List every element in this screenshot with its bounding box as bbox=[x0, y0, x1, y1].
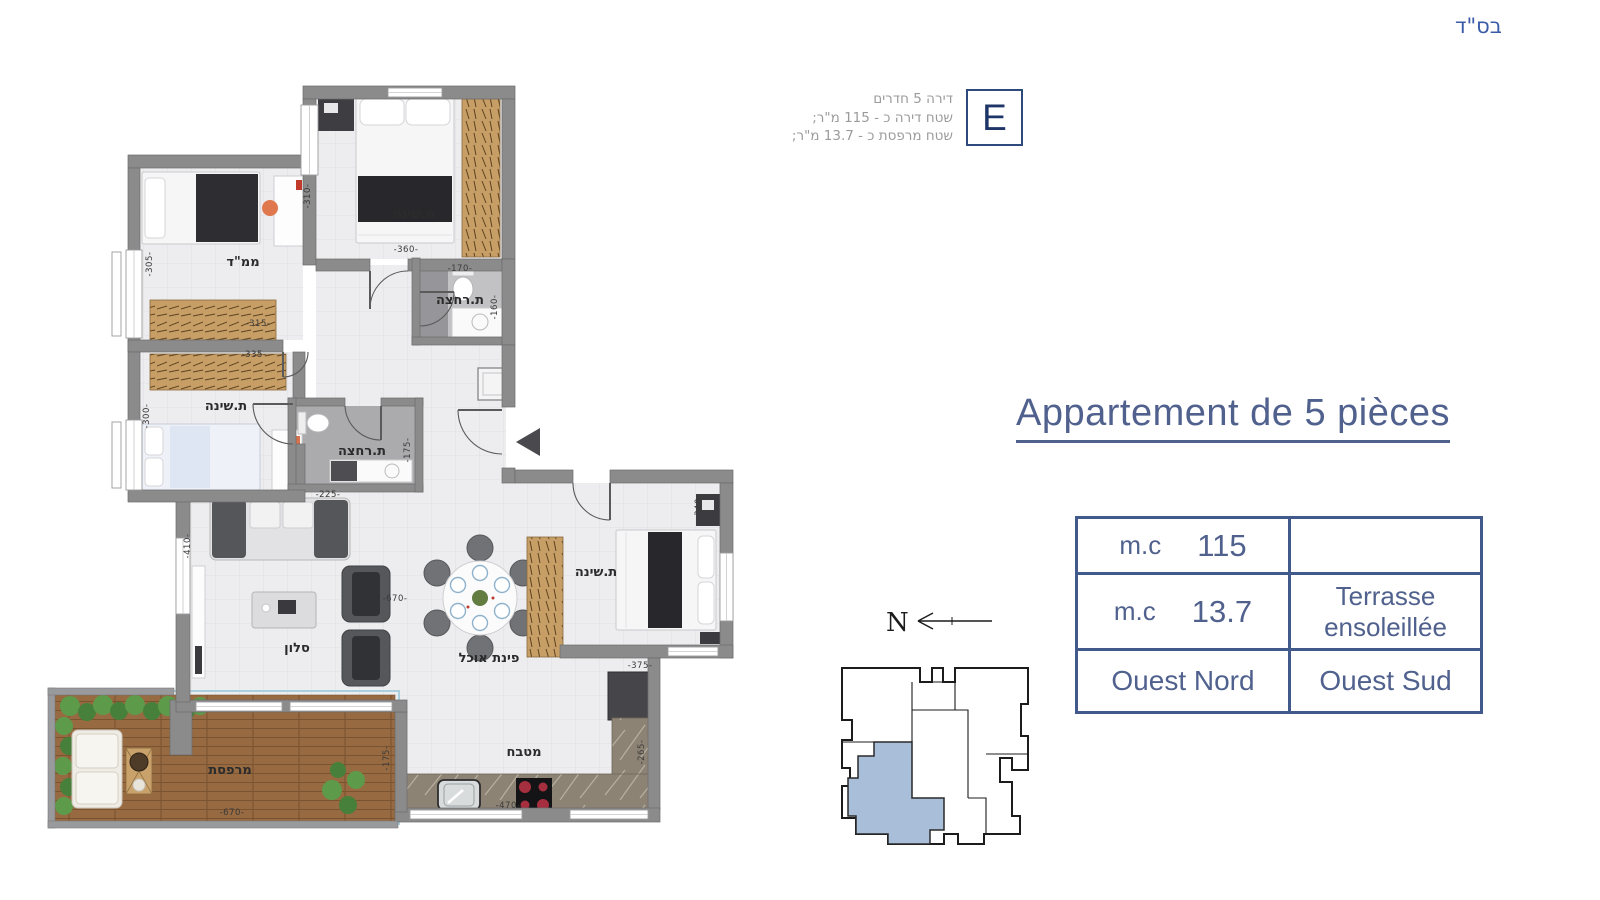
unit-letter-badge: E bbox=[966, 89, 1023, 146]
unit-letter: E bbox=[982, 97, 1007, 139]
sofa bbox=[210, 498, 350, 560]
north-arrow-icon bbox=[918, 613, 992, 629]
brochure-page: { "page": { "bsd": "בס\"ד" }, "unit_info… bbox=[0, 0, 1600, 900]
kitchen-sink bbox=[438, 780, 480, 810]
dimension-label: -410- bbox=[183, 534, 193, 559]
dimension-label: -670- bbox=[383, 594, 408, 604]
room-label: פינת אוכל bbox=[459, 651, 520, 666]
bsd-blessing: בס"ד bbox=[1455, 14, 1502, 38]
spec-cell-terrace-desc: Terrasse ensoleillée bbox=[1291, 575, 1480, 651]
spec-cell-area: m.c 115 bbox=[1078, 519, 1291, 575]
dimension-label: -670- bbox=[220, 808, 245, 818]
coffee-table bbox=[252, 592, 316, 628]
wardrobe bbox=[527, 537, 563, 657]
spec-cell-orientation-right: Ouest Sud bbox=[1291, 651, 1480, 711]
room-label: מרפסת bbox=[208, 763, 252, 778]
dimension-label: -340- bbox=[694, 495, 704, 520]
building-key-plan bbox=[826, 646, 1034, 848]
terrace-desc-line: Terrasse bbox=[1324, 581, 1447, 612]
area-value: 115 bbox=[1197, 528, 1246, 564]
media-unit bbox=[318, 97, 354, 131]
room-label: ת.שינה bbox=[205, 399, 247, 414]
terrace-value: 13.7 bbox=[1192, 594, 1252, 630]
dimension-label: -315- bbox=[246, 319, 271, 329]
entrance-arrow-icon bbox=[516, 428, 540, 456]
double-bed-west bbox=[142, 424, 260, 490]
unit-info-block: דירה 5 חדרים שטח דירה כ - 115 מ"ר; שטח מ… bbox=[705, 90, 953, 146]
wardrobe bbox=[462, 99, 500, 257]
north-label: N bbox=[886, 608, 909, 638]
room-label: ת.שינה bbox=[393, 207, 435, 222]
spec-table: m.c 115 m.c 13.7 Terrasse ensoleillée Ou… bbox=[1075, 516, 1483, 714]
outdoor-table bbox=[130, 753, 148, 771]
room-label: ת.רחצה bbox=[436, 293, 484, 308]
dimension-label: -305- bbox=[145, 252, 155, 277]
room-label: ת.רחצה bbox=[338, 444, 386, 459]
terrace-desc-line: ensoleillée bbox=[1324, 612, 1447, 643]
dimension-label: -175- bbox=[382, 746, 392, 771]
unit-info-line: שטח דירה כ - 115 מ"ר; bbox=[705, 109, 953, 128]
dimension-label: -300- bbox=[142, 404, 152, 429]
spec-cell-terrace-area: m.c 13.7 bbox=[1078, 575, 1291, 651]
dimension-label: -310- bbox=[303, 184, 313, 209]
desk-chair bbox=[262, 200, 278, 216]
dimension-label: -225- bbox=[316, 490, 341, 500]
dimension-label: -335- bbox=[242, 350, 267, 360]
compass: N bbox=[878, 600, 1003, 642]
unit-info-line: דירה 5 חדרים bbox=[705, 90, 953, 109]
room-label: ת.שינה bbox=[575, 565, 617, 580]
spec-cell-orientation-left: Ouest Nord bbox=[1078, 651, 1291, 711]
dimension-label: -160- bbox=[490, 295, 500, 320]
dimension-label: -360- bbox=[394, 245, 419, 255]
single-bed-mamad bbox=[142, 172, 260, 244]
dimension-label: -375- bbox=[628, 661, 653, 671]
page-title: Appartement de 5 pièces bbox=[1016, 392, 1450, 443]
spec-cell-empty bbox=[1291, 519, 1480, 575]
dimension-label: -175- bbox=[403, 438, 413, 463]
unit-label: m.c bbox=[1114, 596, 1156, 627]
room-label: סלון bbox=[284, 641, 310, 656]
dimension-label: -265- bbox=[637, 740, 647, 765]
dimension-label: -170- bbox=[448, 264, 473, 274]
fridge bbox=[608, 672, 650, 720]
unit-info-line: שטח מרפסת כ - 13.7 מ"ר; bbox=[705, 127, 953, 146]
room-label: ממ"ד bbox=[226, 255, 259, 270]
outdoor-stool bbox=[133, 779, 145, 791]
dimension-label: -470- bbox=[496, 801, 521, 811]
floor-plan: ת.שינהממ"דת.שינהת.רחצהת.רחצהסלוןפינת אוכ… bbox=[40, 80, 750, 840]
double-bed-east bbox=[616, 530, 716, 630]
unit-label: m.c bbox=[1119, 530, 1161, 561]
toilet bbox=[307, 414, 329, 432]
room-label: מטבח bbox=[506, 745, 541, 760]
